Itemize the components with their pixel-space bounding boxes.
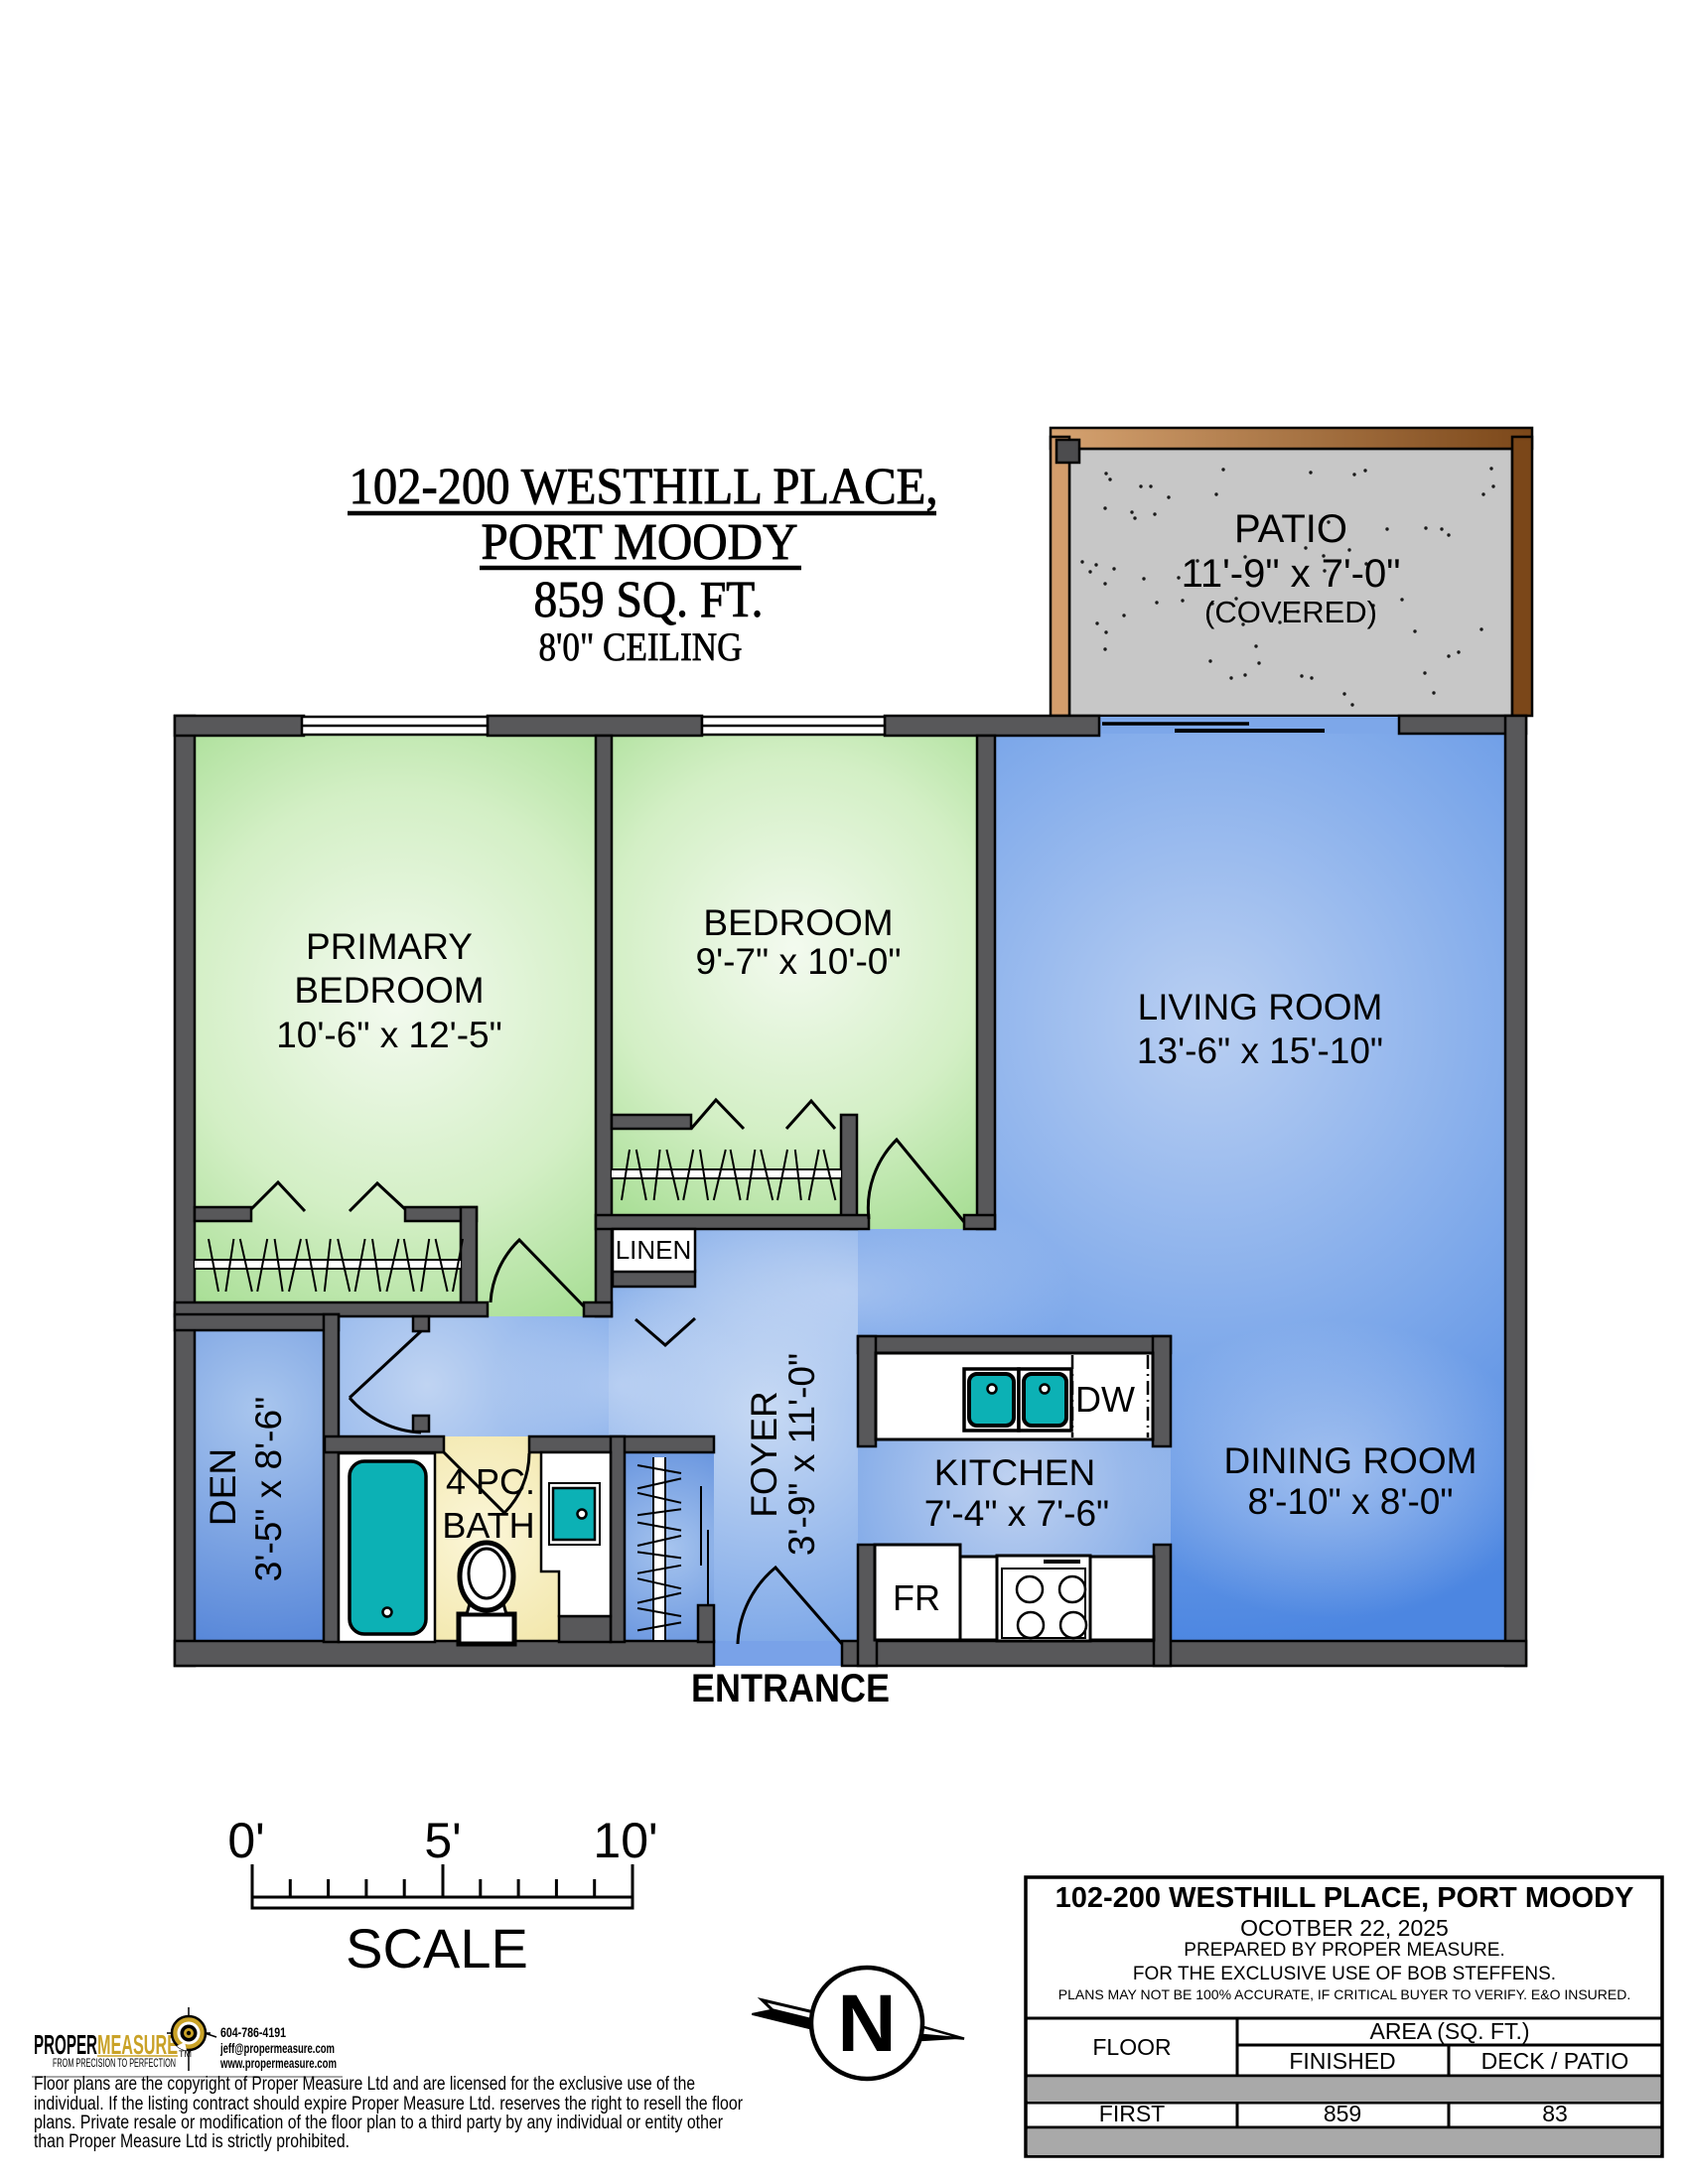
svg-text:13'-6" x 15'-10": 13'-6" x 15'-10" [1137, 1030, 1383, 1071]
svg-text:DINING ROOM: DINING ROOM [1224, 1440, 1477, 1481]
svg-text:102-200 WESTHILL PLACE,: 102-200 WESTHILL PLACE, [350, 459, 938, 515]
svg-text:PREPARED BY PROPER MEASURE.: PREPARED BY PROPER MEASURE. [1184, 1940, 1504, 1961]
svg-text:DEN: DEN [203, 1448, 243, 1526]
svg-text:PRIMARY: PRIMARY [306, 926, 473, 967]
svg-text:AREA (SQ. FT.): AREA (SQ. FT.) [1369, 2018, 1529, 2044]
svg-text:5': 5' [424, 1813, 461, 1868]
svg-text:FIRST: FIRST [1099, 2101, 1165, 2126]
svg-text:83: 83 [1542, 2101, 1568, 2126]
svg-text:FOR THE EXCLUSIVE USE OF BOB S: FOR THE EXCLUSIVE USE OF BOB STEFFENS. [1133, 1964, 1556, 1984]
svg-text:10': 10' [593, 1813, 657, 1868]
svg-text:7'-4" x 7'-6": 7'-4" x 7'-6" [924, 1493, 1109, 1534]
svg-text:Floor plans are the copyright: Floor plans are the copyright of Proper … [34, 2074, 695, 2095]
svg-text:FR: FR [893, 1577, 940, 1618]
svg-text:LIVING ROOM: LIVING ROOM [1138, 987, 1383, 1027]
svg-text:11'-9" x 7'-0": 11'-9" x 7'-0" [1182, 552, 1401, 596]
svg-text:604-786-4191: 604-786-4191 [220, 2025, 286, 2040]
svg-text:PORT MOODY: PORT MOODY [482, 514, 798, 571]
svg-text:10'-6" x 12'-5": 10'-6" x 12'-5" [276, 1015, 502, 1055]
svg-text:LINEN: LINEN [616, 1235, 692, 1265]
svg-text:9'-7" x 10'-0": 9'-7" x 10'-0" [696, 941, 902, 982]
svg-text:FINISHED: FINISHED [1289, 2048, 1395, 2074]
svg-text:KITCHEN: KITCHEN [934, 1452, 1095, 1493]
svg-text:than Proper Measure Ltd is str: than Proper Measure Ltd is strictly proh… [34, 2131, 350, 2152]
svg-text:102-200 WESTHILL PLACE, PORT M: 102-200 WESTHILL PLACE, PORT MOODY [1055, 1882, 1634, 1914]
svg-text:N: N [837, 1979, 896, 2069]
svg-text:FLOOR: FLOOR [1092, 2034, 1171, 2060]
svg-text:plans. Private resale or modi: plans. Private resale or modification of… [34, 2113, 724, 2133]
svg-text:FROM PRECISION TO PERFECTION: FROM PRECISION TO PERFECTION [53, 2056, 176, 2070]
svg-text:OCOTBER 22, 2025: OCOTBER 22, 2025 [1240, 1915, 1449, 1941]
svg-text:8'-10" x 8'-0": 8'-10" x 8'-0" [1248, 1481, 1454, 1522]
svg-text:DW: DW [1075, 1379, 1135, 1420]
svg-text:3'-5" x 8'-6": 3'-5" x 8'-6" [248, 1397, 289, 1581]
svg-text:BATH: BATH [442, 1505, 534, 1546]
svg-text:FOYER: FOYER [744, 1391, 784, 1517]
svg-text:PLANS MAY NOT BE 100% ACCURATE: PLANS MAY NOT BE 100% ACCURATE, IF CRITI… [1058, 1986, 1631, 2002]
svg-text:PATIO: PATIO [1234, 507, 1347, 551]
svg-text:859: 859 [1324, 2101, 1361, 2126]
svg-text:DECK / PATIO: DECK / PATIO [1481, 2048, 1629, 2074]
svg-text:BEDROOM: BEDROOM [703, 902, 893, 943]
svg-text:jeff@propermeasure.com: jeff@propermeasure.com [219, 2041, 335, 2056]
svg-text:(COVERED): (COVERED) [1204, 595, 1377, 629]
svg-text:0': 0' [227, 1813, 264, 1868]
svg-text:4 PC.: 4 PC. [446, 1461, 535, 1502]
svg-text:individual. If the listing co: individual. If the listing contract shou… [34, 2094, 744, 2115]
svg-text:www.propermeasure.com: www.propermeasure.com [219, 2056, 337, 2071]
svg-text:SCALE: SCALE [346, 1917, 528, 1979]
svg-text:BEDROOM: BEDROOM [294, 970, 484, 1011]
svg-text:ENTRANCE: ENTRANCE [691, 1667, 890, 1710]
svg-text:3'-9" x 11'-0": 3'-9" x 11'-0" [781, 1353, 822, 1556]
svg-text:859 SQ. FT.: 859 SQ. FT. [534, 572, 764, 628]
svg-text:8'0" CEILING: 8'0" CEILING [539, 624, 743, 669]
